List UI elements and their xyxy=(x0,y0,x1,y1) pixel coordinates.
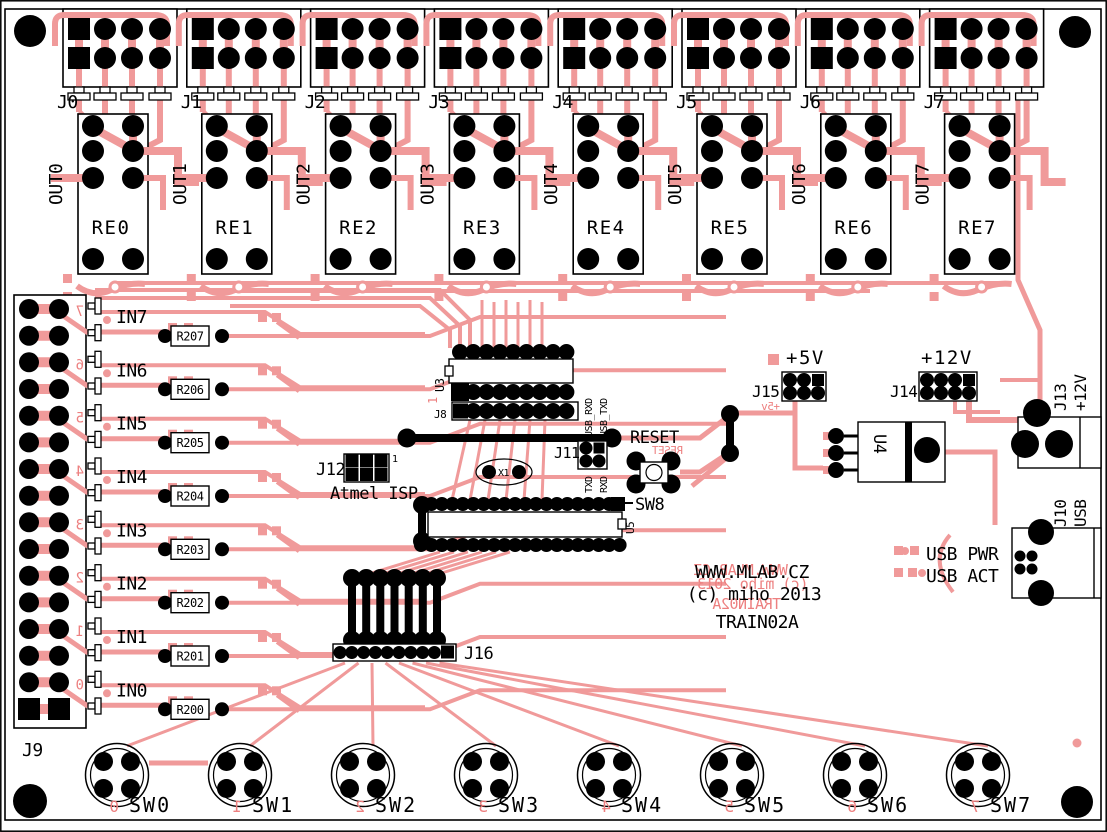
usb-pwr-label: USB PWR xyxy=(926,544,999,565)
input-label: IN7 xyxy=(116,307,147,328)
j11-usb-rxd: USB_RXD xyxy=(584,398,595,437)
resistor-label: R206 xyxy=(177,383,204,397)
name-label: TRAIN02A xyxy=(716,612,799,633)
out-label: OUT0 xyxy=(46,164,67,205)
connector-label: J3 xyxy=(428,92,449,113)
j13-voltage-label: +12V xyxy=(1071,374,1090,411)
switch-digit-mirrored: 7 xyxy=(971,797,980,816)
switch-label: SW2 xyxy=(375,793,417,817)
usb-act-label: USB ACT xyxy=(926,566,999,587)
input-label: IN6 xyxy=(116,360,147,381)
channel-digit-mirrored: 4 xyxy=(76,464,84,480)
switch-digit-mirrored: 5 xyxy=(725,797,734,816)
relay-label: RE0 xyxy=(92,217,131,239)
resistor-label: R203 xyxy=(177,543,204,557)
switch-label: SW6 xyxy=(867,793,909,817)
channel-digit-mirrored: 6 xyxy=(76,357,84,373)
connector-label: J1 xyxy=(181,92,202,113)
j12-pin1-mark: 1 xyxy=(392,454,398,465)
resistor-label: R201 xyxy=(177,650,204,664)
resistor-label: R205 xyxy=(177,436,204,450)
switch-digit-mirrored: 2 xyxy=(356,797,365,816)
j16-label: J16 xyxy=(464,644,493,664)
switch-digit-mirrored: 6 xyxy=(848,797,857,816)
input-label: IN3 xyxy=(116,520,147,541)
j14-label: J14 xyxy=(890,382,917,401)
copyright-label: (c) miho 2013 xyxy=(687,584,821,605)
relay-label: RE1 xyxy=(215,217,254,239)
connector-label: J6 xyxy=(800,92,821,113)
switch-digit-mirrored: 4 xyxy=(602,797,611,816)
u5-ref: U5 xyxy=(624,522,637,534)
j13-label: J13 xyxy=(1051,384,1070,411)
input-label: IN2 xyxy=(116,574,147,595)
input-label: IN4 xyxy=(116,467,147,488)
relay-label: RE5 xyxy=(711,217,750,239)
input-label: IN5 xyxy=(116,414,147,435)
switch-label: SW3 xyxy=(498,793,540,817)
switch-digit-mirrored: 0 xyxy=(110,797,119,816)
connector-label: J7 xyxy=(924,92,945,113)
out-label: OUT6 xyxy=(789,164,810,205)
connector-label: J5 xyxy=(676,92,697,113)
p5-label: +5V xyxy=(786,347,825,369)
j11-label: J11 xyxy=(554,444,580,462)
relay-label: RE2 xyxy=(339,217,378,239)
switch-label: SW0 xyxy=(129,793,171,817)
resistor-label: R207 xyxy=(177,330,204,344)
regulator-u4: U4 xyxy=(823,422,945,482)
j9-label: J9 xyxy=(22,740,43,761)
out-label: OUT2 xyxy=(294,164,315,205)
input-label: IN0 xyxy=(116,680,147,701)
channel-digit-mirrored: 3 xyxy=(76,517,84,533)
sw8-label: SW8 xyxy=(635,495,664,515)
u3-ref: U3 xyxy=(433,378,447,392)
switch-label: SW7 xyxy=(990,793,1032,817)
switch-label: SW4 xyxy=(621,793,663,817)
u4-ref: U4 xyxy=(869,434,889,454)
j11-rxd: RXD xyxy=(599,476,610,493)
switch-label: SW5 xyxy=(744,793,786,817)
out-label: OUT4 xyxy=(541,164,562,205)
connector-label: J0 xyxy=(57,92,78,113)
relay-label: RE3 xyxy=(463,217,502,239)
j9-pin1-pad xyxy=(18,698,40,720)
resistor-label: R204 xyxy=(177,490,204,504)
switch-digit-mirrored: 3 xyxy=(479,797,488,816)
out-label: OUT5 xyxy=(665,164,686,205)
out-label: OUT1 xyxy=(170,164,191,205)
input-label: IN1 xyxy=(116,627,147,648)
pcb-screenshot: J0 OUT0 RE0 J1 OUT1 RE1 J2 OUT2 RE2 J3 O… xyxy=(0,0,1107,832)
relay-label: RE7 xyxy=(958,217,997,239)
relay-label: RE4 xyxy=(587,217,626,239)
j12-label: J12 xyxy=(316,460,345,480)
resistor-label: R200 xyxy=(177,703,204,717)
header-j8: J8 xyxy=(434,402,578,421)
x1-label: X1 xyxy=(498,468,510,479)
isp-caption: Atmel ISP xyxy=(330,484,418,504)
u3-pin1-mark: 1 xyxy=(426,397,440,404)
connector-label: J2 xyxy=(305,92,326,113)
resistor-label: R202 xyxy=(177,596,204,610)
pcb-layout: J0 OUT0 RE0 J1 OUT1 RE1 J2 OUT2 RE2 J3 O… xyxy=(0,0,1107,832)
channel-digit-mirrored: 5 xyxy=(76,411,84,427)
switch-label: SW1 xyxy=(252,793,294,817)
p5-mirrored: +5v xyxy=(761,400,780,413)
connector-label: J4 xyxy=(552,92,573,113)
channel-digit-mirrored: 7 xyxy=(76,304,84,320)
channel-digit-mirrored: 2 xyxy=(76,571,84,587)
j8-label: J8 xyxy=(434,408,446,421)
j11-usb-txd: USB_TXD xyxy=(599,398,610,437)
out-label: OUT7 xyxy=(913,164,934,205)
p12-label: +12V xyxy=(921,347,973,369)
channel-digit-mirrored: 0 xyxy=(76,677,84,693)
switch-digit-mirrored: 1 xyxy=(233,797,242,816)
relay-label: RE6 xyxy=(834,217,873,239)
out-label: OUT3 xyxy=(417,164,438,205)
j10-usb-label: USB xyxy=(1071,500,1090,527)
channel-digit-mirrored: 1 xyxy=(76,624,84,640)
site-label: WWW.MLAB.CZ xyxy=(695,562,809,583)
j15-label: J15 xyxy=(752,382,779,401)
j9-pin2-pad xyxy=(48,698,70,720)
mcu-u5: U5 xyxy=(414,497,637,552)
j10-label: J10 xyxy=(1051,500,1070,527)
j11-txd: TXD xyxy=(584,476,595,493)
